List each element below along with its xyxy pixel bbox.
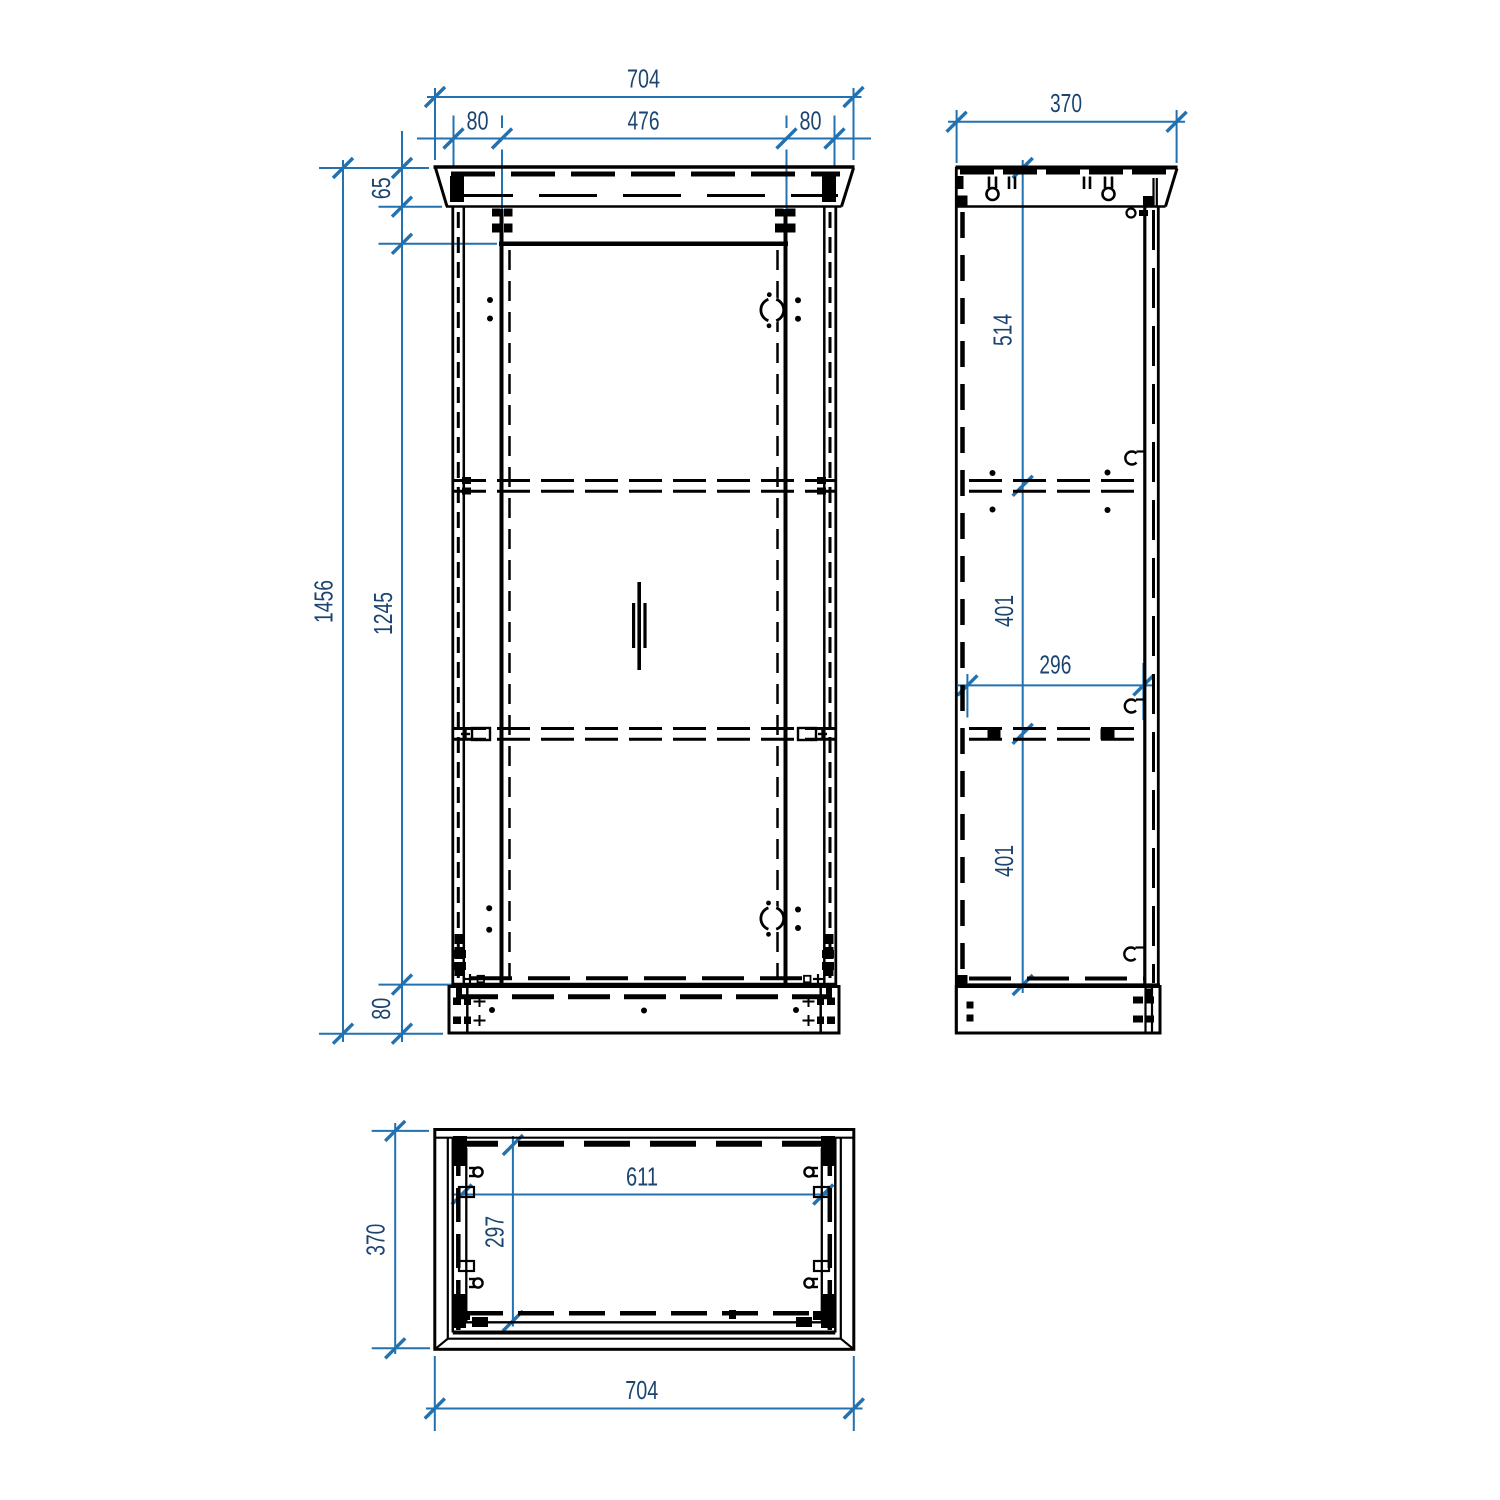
svg-text:65: 65 <box>366 177 396 199</box>
svg-text:514: 514 <box>988 314 1018 346</box>
svg-text:401: 401 <box>989 595 1019 627</box>
svg-text:370: 370 <box>361 1224 391 1256</box>
svg-text:476: 476 <box>628 106 660 136</box>
svg-text:611: 611 <box>626 1162 658 1192</box>
svg-text:80: 80 <box>467 106 489 136</box>
svg-text:1456: 1456 <box>308 580 338 623</box>
svg-text:296: 296 <box>1039 650 1071 680</box>
svg-text:704: 704 <box>625 1375 658 1405</box>
svg-text:370: 370 <box>1050 88 1082 118</box>
svg-text:401: 401 <box>989 845 1019 877</box>
svg-text:297: 297 <box>480 1216 510 1248</box>
svg-text:80: 80 <box>800 106 822 136</box>
svg-text:704: 704 <box>627 64 660 94</box>
svg-text:80: 80 <box>366 998 396 1020</box>
svg-text:1245: 1245 <box>368 592 398 635</box>
